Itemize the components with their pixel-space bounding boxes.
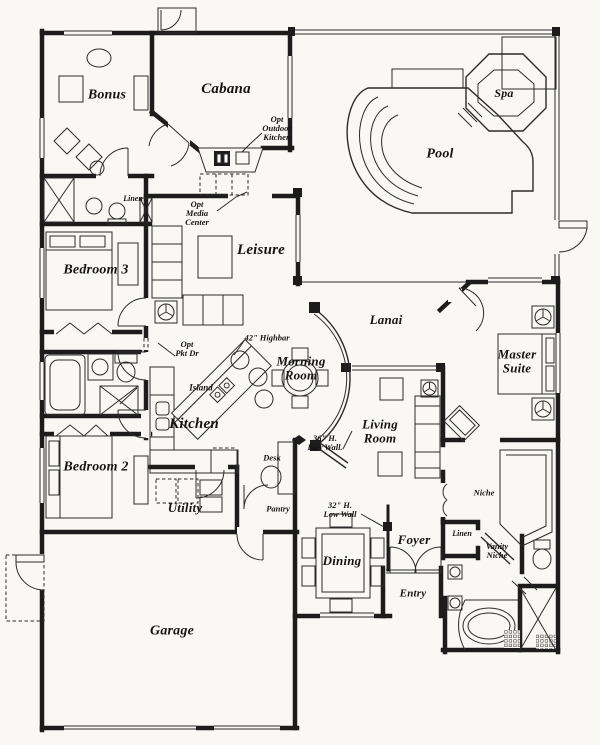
linen-door: [120, 388, 137, 404]
utility-appliances: [156, 479, 222, 512]
master-furniture: [444, 306, 556, 441]
kitchen-fixtures: [150, 340, 273, 473]
bedroom2-furniture: [46, 436, 148, 518]
armchair: [444, 406, 479, 441]
garage-hall-door: [237, 534, 263, 560]
bonus-bath: [44, 178, 152, 224]
low-wall-36-wall: [318, 443, 348, 468]
pool-gate-arc: [559, 228, 587, 252]
windows: [40, 31, 560, 729]
entry-doors: [390, 547, 441, 573]
doors: [6, 8, 537, 621]
vanity-niche-wall: [481, 533, 514, 564]
ceiling-fan: [532, 398, 554, 420]
master-bath: [448, 450, 556, 650]
master-door: [459, 288, 484, 331]
outdoor-kitchen: [198, 148, 263, 172]
pool-shape: [347, 69, 533, 213]
morning-room-table: [272, 348, 328, 408]
ceiling-fan: [155, 301, 177, 323]
floor-plan-page: BonusCabanaSpaPoolLeisureBedroom 3LanaiM…: [0, 0, 600, 745]
bonus-furniture: [54, 49, 148, 175]
shower-x: [44, 178, 74, 222]
shared-bath: [45, 354, 138, 415]
walls: [42, 31, 558, 730]
bedroom3-furniture: [46, 232, 138, 310]
leisure-furniture: [152, 226, 243, 325]
beach-entry-step: [382, 115, 422, 188]
kitchen-island: [172, 340, 272, 440]
dining-furniture: [302, 514, 384, 612]
cabana-door: [161, 10, 181, 30]
ceiling-fan: [532, 306, 554, 328]
ceiling-fan: [421, 380, 438, 397]
pool-gate-leaf: [559, 221, 587, 228]
morning-bay-inner: [314, 314, 347, 442]
beach-entry-step: [371, 106, 418, 196]
pool-planter: [392, 69, 463, 88]
cabana-door-enclosure: [158, 8, 196, 33]
living-window: [352, 366, 437, 370]
spa-deck: [502, 37, 556, 89]
morning-bay-outer: [316, 310, 350, 446]
pantry-door: [244, 485, 268, 509]
wall-openings: [37, 28, 563, 733]
linen-x: [100, 386, 138, 415]
pool-enclosure: [288, 27, 587, 284]
floor-plan-drawing: [0, 0, 600, 745]
stool: [255, 390, 273, 408]
spa-spillway: [458, 103, 482, 127]
desk-nook: [261, 442, 294, 494]
living-room-furniture: [378, 378, 440, 478]
